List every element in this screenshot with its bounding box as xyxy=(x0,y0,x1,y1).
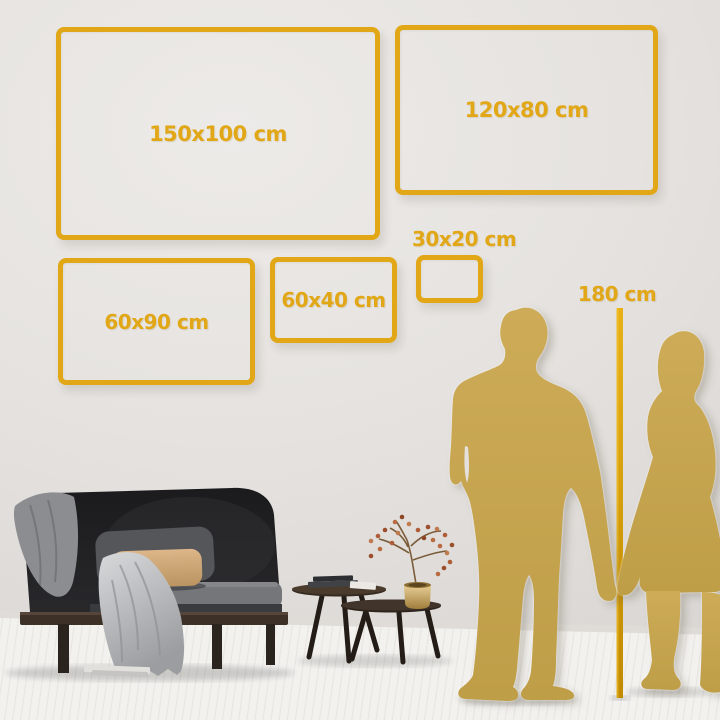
woman-silhouette xyxy=(617,331,720,692)
woman-leg xyxy=(641,591,681,690)
couple-silhouettes xyxy=(0,0,720,720)
man-silhouette xyxy=(450,308,617,701)
size-guide-scene: 150x100 cm 120x80 cm 60x90 cm 60x40 cm 3… xyxy=(0,0,720,720)
woman-back-leg xyxy=(700,592,720,693)
